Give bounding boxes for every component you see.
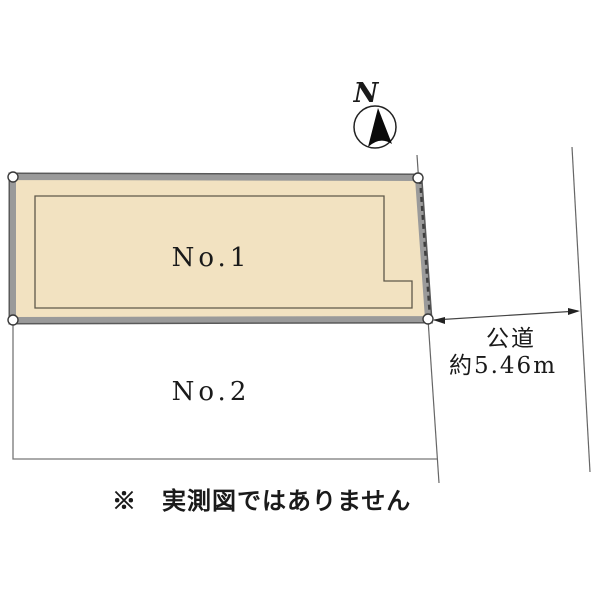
- parcel-no1-label: No.1: [172, 243, 251, 273]
- plot-map: N No.1 No.2 公道 約5.46m ※ 実測図ではありません: [0, 0, 600, 600]
- dimension-arrowhead-right: [568, 308, 580, 315]
- plot-map-svg: N No.1 No.2 公道 約5.46m ※ 実測図ではありません: [0, 0, 600, 600]
- disclaimer-note: ※ 実測図ではありません: [112, 486, 411, 515]
- compass-north-label: N: [353, 78, 380, 109]
- road-name-label: 公道: [486, 326, 536, 352]
- survey-point-top-left: [8, 172, 18, 182]
- survey-point-bottom-right: [423, 314, 433, 324]
- road-width-label: 約5.46m: [449, 353, 557, 379]
- road-width-dimension-line: [434, 311, 578, 320]
- survey-point-bottom-left: [8, 315, 18, 325]
- road-boundary-line-right: [572, 147, 590, 472]
- dimension-arrowhead-left: [433, 317, 445, 324]
- parcel-no2-label: No.2: [172, 377, 251, 407]
- survey-point-top-right: [413, 173, 423, 183]
